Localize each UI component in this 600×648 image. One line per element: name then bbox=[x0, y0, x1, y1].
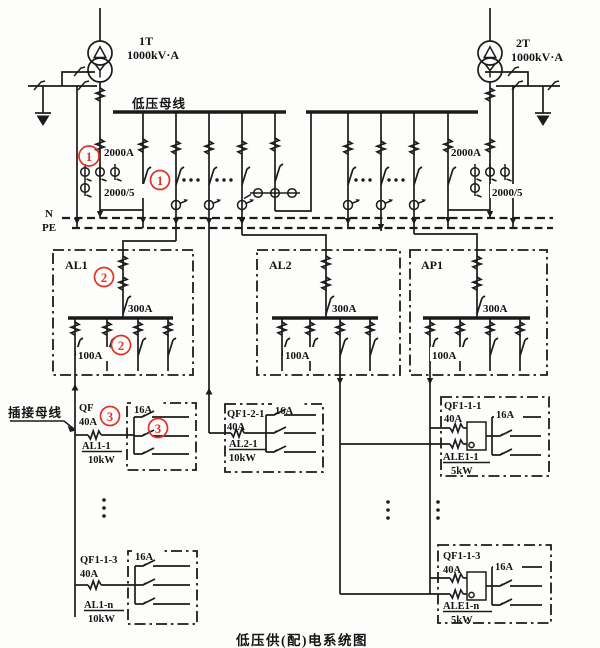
earthing-network-right bbox=[485, 67, 560, 228]
f1-panel: AL1-1 bbox=[82, 441, 111, 452]
earthing-network-left bbox=[28, 67, 97, 228]
f3-amps: 40A bbox=[444, 414, 463, 425]
panel-AP1-main-amps: 300A bbox=[483, 303, 508, 315]
lv-busbar-label: 低压母线 bbox=[131, 96, 186, 111]
f3-breaker: QF1-1-1 bbox=[444, 401, 481, 412]
annotation-3-b: 3 bbox=[155, 422, 161, 436]
f5-breaker: QF1-1-3 bbox=[443, 551, 480, 562]
feeder-ellipsis-dots bbox=[182, 178, 404, 181]
f2-panel: AL2-1 bbox=[229, 439, 258, 450]
f4-panel: AL1-n bbox=[84, 600, 113, 611]
panel-AL1-feeder-amps: 100A bbox=[78, 350, 103, 362]
al2-subfeeder-line bbox=[337, 375, 450, 594]
f1-amps: 40A bbox=[79, 417, 98, 428]
f1-breaker: QF bbox=[79, 403, 94, 414]
incomer-left-ct-ratio: 2000/5 bbox=[104, 187, 135, 199]
plug-bus-label: 插接母线 bbox=[8, 405, 62, 420]
floor-box-ALE1-n: QF1-1-3 40A 16A ALE1-n 5kW bbox=[438, 545, 551, 626]
panel-AL2-feeder-amps: 100A bbox=[285, 350, 310, 362]
panel-AL1-name: AL1 bbox=[65, 258, 88, 272]
diagram-title: 低压供(配)电系统图 bbox=[235, 632, 368, 648]
panel-AL1-main-amps: 300A bbox=[128, 303, 153, 315]
transformer-2T-rating: 1000kV·A bbox=[511, 50, 563, 64]
f3-panel: ALE1-1 bbox=[443, 452, 479, 463]
panel-AP1: AP1 300A 100A bbox=[410, 234, 547, 375]
panel-AL2-main-amps: 300A bbox=[332, 303, 357, 315]
annotation-1-b: 1 bbox=[157, 174, 163, 188]
floor-box-ALE1-1: QF1-1-1 40A 16A ALE1-1 5kW bbox=[441, 397, 549, 477]
f3-branch-amps: 16A bbox=[496, 410, 515, 421]
panel-AP1-name: AP1 bbox=[421, 258, 443, 272]
incomer-right: 2000A 2000/5 bbox=[444, 82, 545, 228]
power-distribution-diagram: 1T 1000kV·A 2000A 2000/5 2T bbox=[0, 0, 600, 648]
floor-box-AL2-1: QF1-2-1 40A AL2-1 10kW 16A bbox=[209, 402, 323, 472]
annotation-3-a: 3 bbox=[107, 410, 113, 424]
panel-AL2-name: AL2 bbox=[269, 258, 292, 272]
transformer-1T-rating: 1000kV·A bbox=[127, 48, 179, 62]
panel-AP1-feeder-amps: 100A bbox=[432, 350, 457, 362]
f4-breaker: QF1-1-3 bbox=[80, 555, 117, 566]
f5-panel: ALE1-n bbox=[443, 601, 479, 612]
incomer-right-amps: 2000A bbox=[451, 147, 481, 159]
f1-branch-amps: 16A bbox=[134, 405, 153, 416]
n-pe-mains: N PE bbox=[42, 208, 553, 234]
n-label: N bbox=[45, 208, 53, 220]
schematic-page: 1T 1000kV·A 2000A 2000/5 2T bbox=[0, 0, 600, 648]
bus-tie bbox=[244, 112, 311, 211]
f2-amps: 40A bbox=[227, 422, 246, 433]
incomer-left-amps: 2000A bbox=[104, 147, 134, 159]
lv-busbar: 低压母线 bbox=[113, 96, 478, 112]
f5-load: 5kW bbox=[451, 615, 473, 626]
f4-amps: 40A bbox=[80, 569, 99, 580]
annotation-2-a: 2 bbox=[101, 271, 107, 285]
floor-box-AL1-n: QF1-1-3 40A AL1-n 10kW 16A bbox=[75, 548, 197, 625]
transformer-2T-id: 2T bbox=[516, 36, 530, 50]
f1-load: 10kW bbox=[88, 455, 115, 466]
transformer-1T: 1T 1000kV·A bbox=[88, 8, 179, 101]
f5-branch-amps: 16A bbox=[495, 562, 514, 573]
ground-symbol-right bbox=[535, 113, 551, 126]
f4-load: 10kW bbox=[88, 614, 115, 625]
pe-label: PE bbox=[42, 222, 56, 234]
f2-load: 10kW bbox=[229, 453, 256, 464]
incomer-right-ct-ratio: 2000/5 bbox=[492, 187, 523, 199]
f3-load: 5kW bbox=[451, 466, 473, 477]
floor-box-AL1-1: QF 40A AL1-1 10kW 16A bbox=[75, 401, 196, 470]
f2-breaker: QF1-2-1 bbox=[227, 409, 264, 420]
bus-feeders bbox=[172, 112, 427, 433]
annotation-2-b: 2 bbox=[118, 339, 124, 353]
panel-AL2: AL2 300A 100A bbox=[242, 235, 400, 375]
transformer-1T-id: 1T bbox=[139, 34, 153, 48]
ground-symbol-left bbox=[35, 113, 51, 126]
annotation-1-a: 1 bbox=[86, 150, 92, 164]
f5-amps: 40A bbox=[443, 565, 462, 576]
